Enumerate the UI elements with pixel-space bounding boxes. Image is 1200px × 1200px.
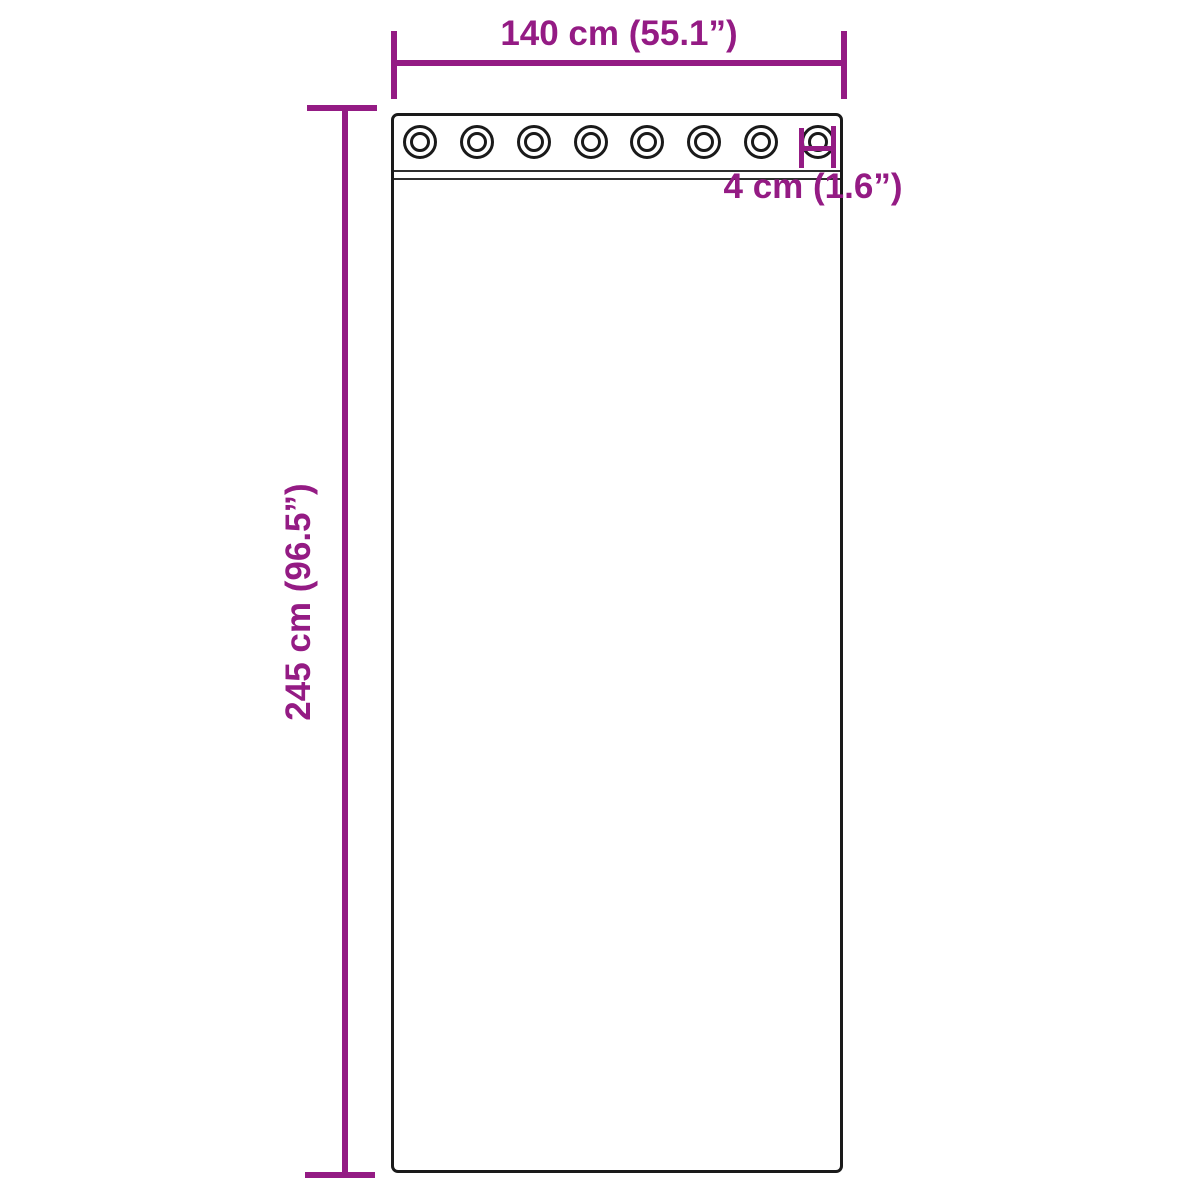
curtain-panel (391, 113, 843, 1173)
grommet-icon (630, 125, 664, 159)
grommet-inner-ring (581, 132, 601, 152)
grommet-icon (801, 125, 835, 159)
dimension-diagram: 140 cm (55.1”) 245 cm (96.5”) 4 cm (1.6”… (0, 0, 1200, 1200)
grommet-icon (517, 125, 551, 159)
grommet-inner-ring (410, 132, 430, 152)
grommet-inner-ring (467, 132, 487, 152)
grommet-inner-ring (694, 132, 714, 152)
height-dimension-label: 245 cm (96.5”) (279, 483, 319, 720)
grommet-icon (744, 125, 778, 159)
width-dimension-label: 140 cm (55.1”) (391, 14, 847, 54)
grommet-diameter-label: 4 cm (1.6”) (724, 167, 903, 207)
grommet-icon (460, 125, 494, 159)
grommet-icon (403, 125, 437, 159)
grommet-bracket-crossbar (799, 146, 836, 151)
dimension-tick-top (307, 105, 377, 111)
grommet-inner-ring (637, 132, 657, 152)
grommet-icon (687, 125, 721, 159)
grommet-row (403, 125, 835, 159)
grommet-inner-ring (524, 132, 544, 152)
dimension-tick-bottom (305, 1172, 375, 1178)
grommet-icon (574, 125, 608, 159)
width-dimension-line (391, 60, 847, 66)
height-dimension-line (342, 105, 348, 1178)
grommet-inner-ring (751, 132, 771, 152)
